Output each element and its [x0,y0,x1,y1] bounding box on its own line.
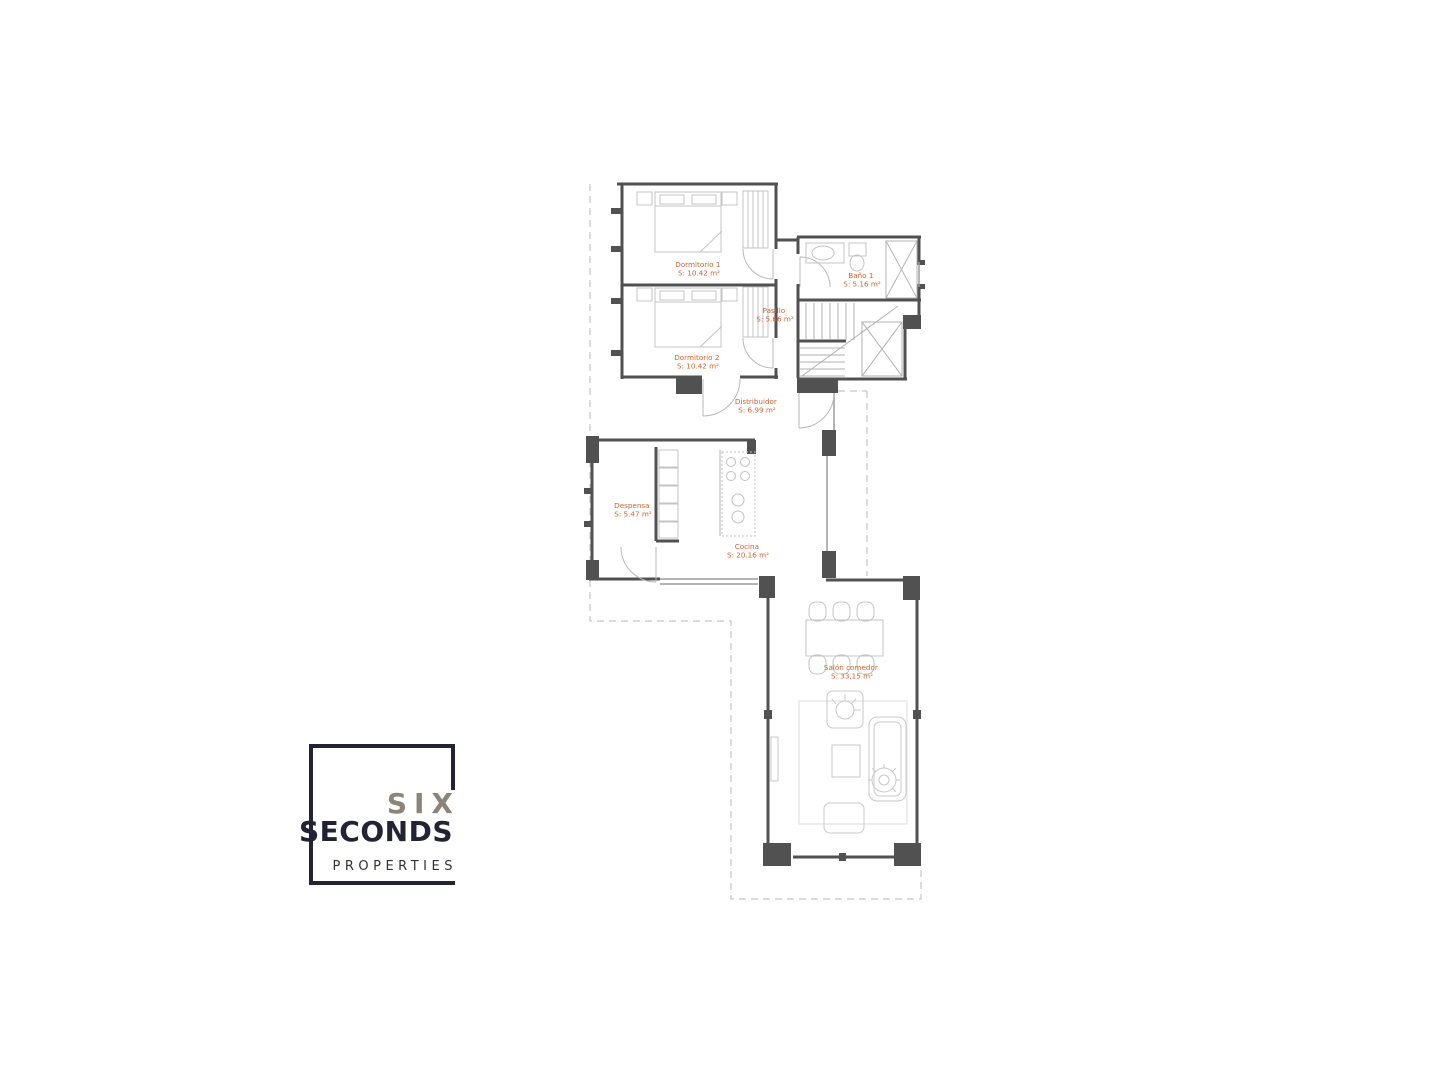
page: Dormitorio 1 S: 10.42 m² Dormitorio 2 S:… [0,0,1440,1080]
bedroom1-furniture-icon [637,191,768,252]
kitchen-counter-icon [720,450,755,536]
six-seconds-logo: SIX SECONDS PROPERTIES [309,744,455,885]
room-label-distribuidor: Distribuidor S: 6.99 m² [735,397,779,415]
tv-console-icon [771,737,778,781]
logo-text-seconds: SECONDS [299,818,453,846]
floorplan-drawing: Dormitorio 1 S: 10.42 m² Dormitorio 2 S:… [0,0,1440,1080]
room-label-cocina: Cocina S: 20.16 m² [727,542,769,560]
pantry-shelves-icon [659,450,678,538]
room-label-salon-comedor: Salón comedor S: 33,15 m² [824,663,880,681]
logo-text-six: SIX [387,790,460,818]
logo-frame-top [309,744,455,748]
logo-frame-bottom [309,881,455,885]
window-lines [660,262,919,584]
room-label-dormitorio-2: Dormitorio 2 S: 10.42 m² [674,353,721,371]
bathroom-fixtures-icon [806,241,917,298]
room-label-pasillo: Pasillo S: 5.66 m² [756,306,794,324]
room-label-dormitorio-1: Dormitorio 1 S: 10.42 m² [675,260,722,278]
room-label-bano-1: Baño 1 S: 5.16 m² [843,271,881,289]
room-label-despensa: Despensa S: 5.47 m² [614,501,652,519]
room-labels: Dormitorio 1 S: 10.42 m² Dormitorio 2 S:… [614,260,881,681]
sofa-set-icon [771,691,907,833]
wardrobe-icon [743,191,768,248]
logo-frame-right [451,744,455,790]
logo-text-properties: PROPERTIES [333,860,458,873]
bedroom2-furniture-icon [637,287,768,347]
